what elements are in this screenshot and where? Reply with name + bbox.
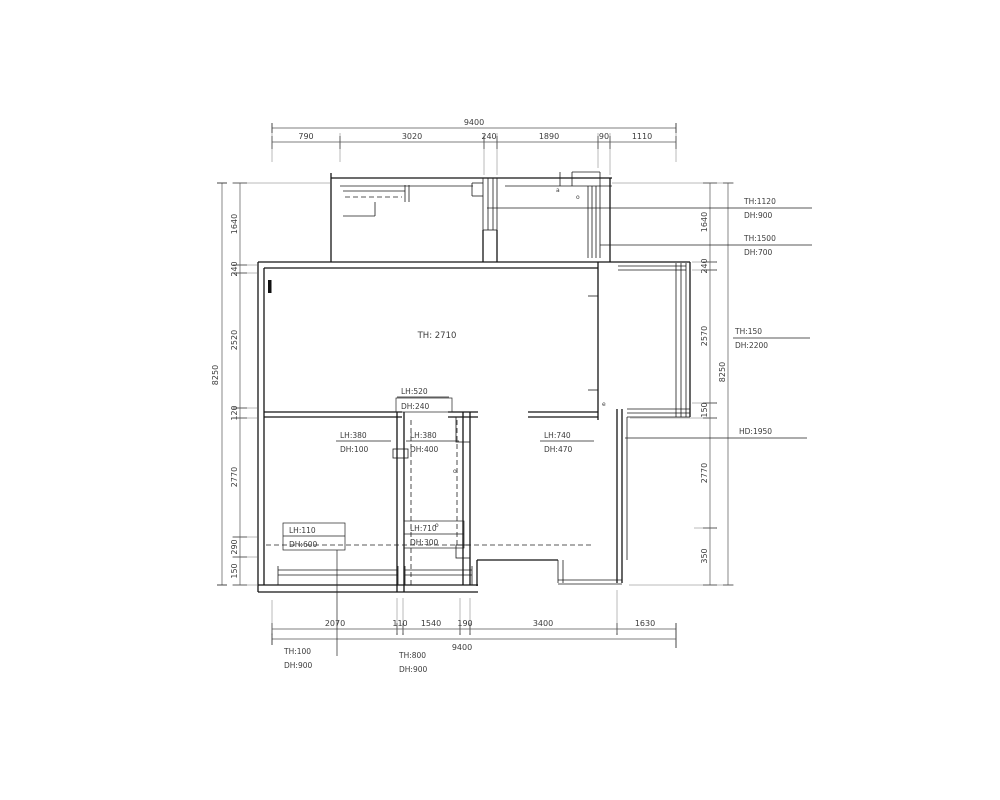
- door-mark: o: [576, 194, 580, 201]
- dim-seg: 120: [230, 405, 239, 420]
- dim-seg: 290: [230, 539, 239, 554]
- beam-label: LH:710: [410, 524, 437, 533]
- beam-label: DH:400: [410, 445, 438, 454]
- dim-total-left: 8250: [211, 365, 220, 385]
- dim-left: 8250 1640 240 2520 120 2770 290 150: [211, 183, 330, 585]
- door-mark: a: [556, 187, 560, 194]
- dim-right: 8250 1640 240 2570 150 2770 350: [612, 183, 734, 585]
- main-walls: [258, 262, 690, 592]
- beam-label: LH:380: [340, 431, 367, 440]
- window-annotation: DH:900: [744, 211, 772, 220]
- window-annotation: HD:1950: [739, 427, 772, 436]
- annotations-bottom: TH:100 DH:900 TH:800 DH:900: [283, 550, 427, 674]
- upper-section-walls: [331, 172, 612, 262]
- beam-label: DH:470: [544, 445, 572, 454]
- dim-seg: 90: [599, 132, 609, 141]
- window-annotation: DH:900: [399, 665, 427, 674]
- window-annotation: TH:800: [398, 651, 426, 660]
- dim-total-right: 8250: [718, 362, 727, 382]
- dim-seg: 150: [230, 563, 239, 578]
- dim-seg: 2770: [230, 467, 239, 487]
- door-marks: a o e o o: [435, 187, 606, 529]
- window-annotation: TH:100: [283, 647, 311, 656]
- beam-label: LH:380: [410, 431, 437, 440]
- dim-seg: 2070: [325, 619, 345, 628]
- dim-bottom: 2070 110 1540 190 3400 1630 9400: [272, 590, 676, 652]
- dim-seg: 790: [298, 132, 313, 141]
- dim-seg: 3400: [533, 619, 553, 628]
- flue-detail: [343, 185, 409, 216]
- dim-seg: 1540: [421, 619, 441, 628]
- interior-labels: TH: 2710 LH:520 DH:240 LH:380 DH:100 LH:…: [283, 331, 594, 550]
- floor-plan-canvas: 9400 790 3020 240 1890 90 1110 2070 110 …: [0, 0, 1000, 800]
- dim-seg: 2570: [700, 326, 709, 346]
- dim-total-top: 9400: [464, 118, 484, 127]
- annotations-right: TH:1120 DH:900 TH:1500 DH:700 TH:150 DH:…: [487, 197, 812, 438]
- interior-partition: [264, 412, 598, 417]
- beam-label: DH:600: [289, 540, 317, 549]
- window-annotation: DH:900: [284, 661, 312, 670]
- beam-label: DH:300: [410, 538, 438, 547]
- window-annotation: TH:1500: [743, 234, 776, 243]
- dim-top: 9400 790 3020 240 1890 90 1110: [272, 118, 676, 175]
- dim-seg: 1890: [539, 132, 559, 141]
- dim-seg: 240: [700, 258, 709, 273]
- dim-seg: 150: [700, 402, 709, 417]
- window-annotation: DH:700: [744, 248, 772, 257]
- beam-label: DH:240: [401, 402, 429, 411]
- dim-seg: 3020: [402, 132, 422, 141]
- beam-label: DH:100: [340, 445, 368, 454]
- dim-seg: 1630: [635, 619, 655, 628]
- dim-seg: 350: [700, 548, 709, 563]
- beam-label: LH:520: [401, 387, 428, 396]
- dim-total-bottom: 9400: [452, 643, 472, 652]
- window-top-b: [588, 186, 600, 258]
- dim-seg: 2520: [230, 330, 239, 350]
- door-mark: o: [453, 468, 457, 475]
- bay-window-right: [618, 262, 690, 417]
- dim-seg: 110: [392, 619, 407, 628]
- room-height-label: TH: 2710: [417, 331, 457, 341]
- beam-label: LH:110: [289, 526, 316, 535]
- window-annotation: TH:150: [734, 327, 762, 336]
- dim-seg: 1640: [700, 212, 709, 232]
- north-mark: [268, 280, 272, 293]
- floor-plan-page: 9400 790 3020 240 1890 90 1110 2070 110 …: [0, 0, 1000, 800]
- window-annotation: DH:2200: [735, 341, 768, 350]
- door-mark: o: [435, 522, 439, 529]
- door-mark: e: [602, 401, 606, 408]
- beam-label: LH:740: [544, 431, 571, 440]
- bottom-walls-windows: [258, 545, 593, 592]
- window-top-a: [472, 178, 497, 262]
- dim-seg: 190: [457, 619, 472, 628]
- dim-seg: 240: [481, 132, 496, 141]
- window-annotation: TH:1120: [743, 197, 776, 206]
- dim-seg: 2770: [700, 463, 709, 483]
- dim-seg: 1640: [230, 214, 239, 234]
- dim-seg: 1110: [632, 132, 652, 141]
- dim-seg: 240: [230, 261, 239, 276]
